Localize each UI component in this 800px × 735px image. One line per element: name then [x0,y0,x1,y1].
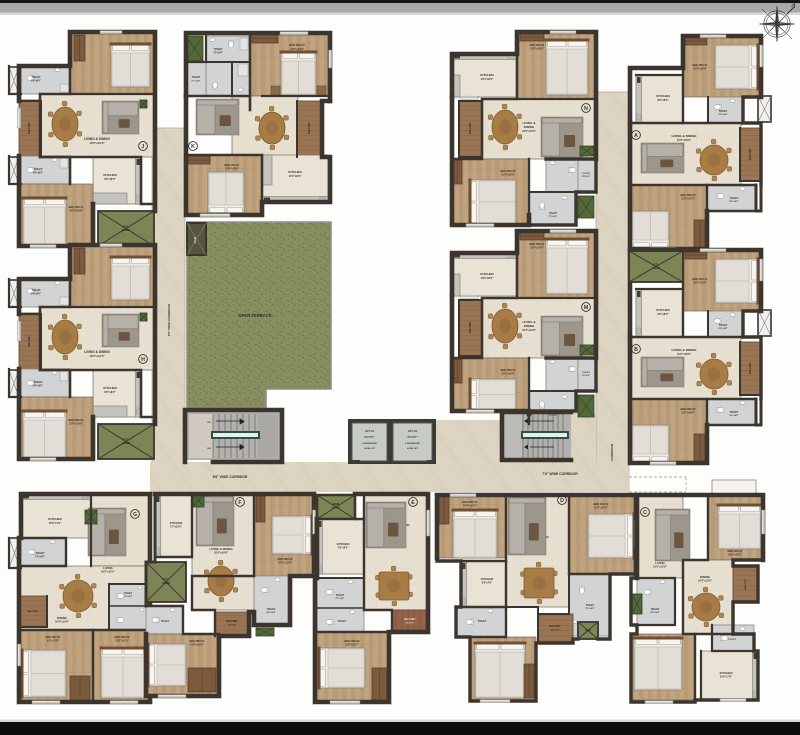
svg-text:TOILET: TOILET [214,48,223,51]
svg-text:10'0"x12'0": 10'0"x12'0" [728,553,743,557]
svg-text:8'0"x4'0": 8'0"x4'0" [729,414,738,417]
svg-text:KITCHEN: KITCHEN [656,308,669,312]
svg-text:E: E [411,500,415,506]
svg-text:A: A [634,133,638,139]
svg-text:4 PASSENGER: 4 PASSENGER [405,442,420,445]
svg-text:TOILET: TOILET [36,552,45,555]
svg-text:BALCONY: BALCONY [749,362,752,374]
svg-text:D: D [560,498,564,504]
svg-text:5'0"x8'0": 5'0"x8'0" [31,293,41,296]
svg-text:KITCHEN: KITCHEN [103,386,116,390]
svg-text:8'0"x8'0": 8'0"x8'0" [657,98,669,102]
svg-text:BED RM 01: BED RM 01 [693,63,708,67]
svg-text:10'0"x10'0": 10'0"x10'0" [214,551,229,555]
svg-text:10'0"x13'0": 10'0"x13'0" [89,354,105,358]
svg-text:LIFT-02: LIFT-02 [408,429,418,433]
svg-text:12'0"x10'0": 12'0"x10'0" [681,411,696,415]
svg-text:5'0"x8'0": 5'0"x8'0" [31,80,41,83]
svg-text:G: G [133,512,137,518]
svg-text:H: H [141,357,145,363]
svg-text:KITCHEN: KITCHEN [288,170,301,174]
svg-text:BALCONY: BALCONY [28,122,31,134]
svg-text:10'0"x8'0": 10'0"x8'0" [289,174,303,178]
svg-text:A.C.: A.C. [653,262,658,266]
svg-text:TOILET: TOILET [586,604,595,607]
svg-text:BED RM 02: BED RM 02 [681,193,696,197]
svg-text:KITCHEN: KITCHEN [481,577,493,581]
svg-text:5'5"x4'0": 5'5"x4'0" [551,629,560,632]
svg-text:12'0"x10'0": 12'0"x10'0" [225,167,240,171]
svg-text:7'0"x4'0": 7'0"x4'0" [228,624,237,627]
svg-text:BALCONY: BALCONY [749,148,752,160]
svg-text:BED RM 02: BED RM 02 [501,368,516,372]
svg-text:BED RM 01: BED RM 01 [69,205,84,209]
svg-text:12'0"x10'0": 12'0"x10'0" [69,209,84,213]
svg-text:TOILET: TOILET [728,639,736,641]
svg-text:7'0"x4'0": 7'0"x4'0" [124,595,133,598]
svg-text:TOILET: TOILET [31,75,41,79]
svg-text:6'8"x5'7": 6'8"x5'7" [407,436,417,439]
svg-text:N: N [584,106,588,112]
svg-text:8'0"x8'0": 8'0"x8'0" [104,390,116,394]
svg-text:BED RM 02: BED RM 02 [289,43,305,47]
svg-text:5'0"x8'0": 5'0"x8'0" [33,172,43,175]
svg-text:K: K [191,144,195,150]
svg-text:BED RM 02: BED RM 02 [345,639,360,643]
svg-text:TOILET: TOILET [33,167,43,171]
svg-text:DINING: DINING [57,616,68,620]
svg-text:BALCONY: BALCONY [469,321,472,333]
svg-text:12'0"x10'0": 12'0"x10'0" [69,422,84,426]
svg-text:TOILET: TOILET [582,173,590,175]
svg-text:12'0"x10'0": 12'0"x10'0" [530,246,545,250]
svg-text:10'0"x7'0": 10'0"x7'0" [720,675,733,679]
svg-text:BED RM 02: BED RM 02 [681,407,696,411]
svg-text:TOILET: TOILET [336,594,345,597]
svg-text:LIVING & DINING: LIVING & DINING [671,348,697,352]
svg-text:5'0"x8'0": 5'0"x8'0" [33,385,43,388]
svg-text:KITCHEN: KITCHEN [720,671,733,675]
svg-text:TOILET: TOILET [719,324,728,327]
svg-text:7'5"x4'0": 7'5"x4'0" [585,607,594,610]
svg-text:KITCHEN: KITCHEN [656,94,669,98]
svg-text:TOILET: TOILET [192,76,201,79]
svg-text:8'0"x4'0": 8'0"x4'0" [729,200,738,203]
svg-text:KITCHEN: KITCHEN [103,173,116,177]
svg-text:7'0"x5'0": 7'0"x5'0" [213,53,223,55]
svg-text:BALCONY: BALCONY [28,610,39,613]
svg-text:MAID: MAID [333,503,340,506]
svg-text:8'0"x7'0": 8'0"x7'0" [482,582,493,585]
svg-text:10'0"x12'0": 10'0"x12'0" [594,506,609,510]
svg-text:4 PASSENGER: 4 PASSENGER [362,442,377,445]
svg-text:KONE LIFT: KONE LIFT [407,448,419,450]
svg-text:BALCONY: BALCONY [404,618,416,621]
svg-text:BED RM 01: BED RM 01 [530,43,545,47]
svg-text:10'0"x7'0": 10'0"x7'0" [49,521,63,525]
svg-text:BALCONY: BALCONY [549,625,561,628]
svg-text:6'5"x4'0": 6'5"x4'0" [650,611,659,614]
svg-text:11'0"x12'0": 11'0"x12'0" [190,643,204,647]
svg-text:BED RM 01: BED RM 01 [693,277,708,281]
svg-text:BED RM 02: BED RM 02 [115,635,130,639]
svg-text:7'6" WIDE CORRIDOR: 7'6" WIDE CORRIDOR [542,472,578,476]
svg-text:M: M [584,305,588,311]
svg-text:9'0" WIDE CORRIDOR: 9'0" WIDE CORRIDOR [167,303,171,336]
svg-text:12'0"x11'0": 12'0"x11'0" [115,639,129,643]
svg-text:LIFT-01: LIFT-01 [365,429,375,433]
svg-text:BALCONY: BALCONY [28,335,31,347]
svg-text:10'0"x13'0": 10'0"x13'0" [89,141,105,145]
svg-text:TOILET: TOILET [31,288,41,292]
svg-text:LIVING & DINING: LIVING & DINING [209,547,233,551]
svg-text:7'0"x10'0": 7'0"x10'0" [170,526,183,529]
svg-text:6'0"x5'0": 6'0"x5'0" [582,176,590,178]
svg-text:BALCONY: BALCONY [469,122,472,134]
svg-text:C: C [643,510,647,516]
svg-text:TOILET: TOILET [124,593,133,595]
svg-text:MAID: MAID [585,629,591,632]
svg-text:DN: DN [207,448,211,450]
svg-text:10'0"x16'0": 10'0"x16'0" [677,138,692,142]
svg-text:12'0"x10'0": 12'0"x10'0" [693,67,708,71]
svg-text:LEDGE: LEDGE [652,267,661,270]
svg-text:BED RM 01: BED RM 01 [728,549,743,553]
svg-text:BED RM 02: BED RM 02 [501,169,516,173]
svg-text:12'0"x10'0": 12'0"x10'0" [501,372,516,376]
svg-text:BALCONY: BALCONY [226,620,238,623]
svg-text:KONE LIFT: KONE LIFT [364,448,376,450]
svg-text:DINING: DINING [524,324,535,328]
svg-text:BED RM 02: BED RM 02 [594,502,609,506]
svg-text:B: B [634,347,638,353]
svg-text:6'5"x4'0": 6'5"x4'0" [718,113,727,116]
svg-text:7'5"x4'0": 7'5"x4'0" [335,597,344,600]
svg-text:LIVING: LIVING [103,566,113,570]
svg-text:7'0"x4'0": 7'0"x4'0" [331,507,340,510]
svg-text:7'5"x5'0": 7'5"x5'0" [549,415,558,417]
svg-text:11'0"x11'7": 11'0"x11'7" [345,643,359,647]
svg-text:BED RM 01: BED RM 01 [46,635,61,639]
svg-text:BED RM 01: BED RM 01 [463,500,478,504]
svg-text:12'0"x10'0": 12'0"x10'0" [290,47,305,51]
svg-text:7'1"x5'0": 7'1"x5'0" [191,81,200,83]
svg-text:LIVING: LIVING [655,561,665,565]
svg-text:9'0"x11'0": 9'0"x11'0" [47,639,60,643]
svg-text:8'0"x8'0": 8'0"x8'0" [104,177,116,181]
svg-text:LIVING & DINING: LIVING & DINING [671,134,697,138]
svg-text:7'0"x8'0": 7'0"x8'0" [338,546,350,550]
svg-text:MAID: MAID [193,237,197,244]
svg-text:TOILET: TOILET [549,213,558,215]
svg-text:LEDGE: LEDGE [122,229,131,232]
svg-text:6'0"x5'0": 6'0"x5'0" [582,375,590,377]
svg-text:7'0"x4'0": 7'0"x4'0" [35,556,45,559]
svg-text:TOILET: TOILET [730,411,739,414]
svg-text:TOILET: TOILET [33,380,43,384]
svg-text:A.C.: A.C. [123,437,128,441]
svg-text:TOILET: TOILET [338,621,347,623]
svg-text:BED RM 01: BED RM 01 [530,242,545,246]
svg-text:BED RM 01: BED RM 01 [190,639,205,643]
svg-text:A.C.: A.C. [123,224,128,228]
svg-text:BALCONY: BALCONY [308,122,311,134]
svg-text:10'0"x8'0": 10'0"x8'0" [481,77,495,81]
svg-text:DINING: DINING [700,575,711,579]
svg-text:10'0"x8'0": 10'0"x8'0" [481,276,495,280]
svg-text:TOILET: TOILET [719,110,728,113]
svg-text:10'0"x16'0": 10'0"x16'0" [677,352,692,356]
svg-text:TOILET: TOILET [161,621,170,623]
svg-text:TOILET: TOILET [478,620,487,623]
svg-text:10'0"x12'2": 10'0"x12'2" [101,570,116,574]
svg-text:BALCONY: BALCONY [744,578,747,589]
svg-text:12'0"x10'0": 12'0"x10'0" [681,197,696,201]
svg-text:12'0"x10'0": 12'0"x10'0" [530,47,545,51]
svg-text:10'0"x12'2": 10'0"x12'2" [463,504,478,508]
svg-text:BED RM 02: BED RM 02 [278,557,293,561]
svg-text:12'0"x10'0": 12'0"x10'0" [501,173,516,177]
svg-text:6'5"x4'0": 6'5"x4'0" [718,327,727,330]
svg-text:7'5"x5'0": 7'5"x5'0" [549,216,558,218]
svg-text:KITCHEN: KITCHEN [170,521,182,525]
svg-text:BED RM 01: BED RM 01 [225,163,240,167]
svg-text:F: F [238,500,241,506]
svg-text:TOILET: TOILET [730,197,739,200]
svg-text:TOILET: TOILET [267,608,276,611]
svg-text:KITCHEN: KITCHEN [480,73,493,77]
svg-text:LEDGE: LEDGE [122,442,131,445]
svg-text:TOILET: TOILET [651,608,660,611]
svg-text:A.C.: A.C. [163,577,168,581]
svg-text:J: J [142,144,145,150]
svg-text:10'0"x12'2": 10'0"x12'2" [653,565,668,569]
svg-text:6'5"x7'0": 6'5"x7'0" [406,623,415,625]
svg-text:8'0"x8'0": 8'0"x8'0" [657,312,669,316]
svg-text:LEDGE: LEDGE [162,582,171,585]
svg-text:BED RM 01: BED RM 01 [69,418,84,422]
svg-text:KITCHEN: KITCHEN [480,272,493,276]
svg-text:10'0"x10'5": 10'0"x10'5" [698,579,713,583]
svg-text:10'0"x10'6": 10'0"x10'6" [55,620,70,624]
svg-text:12'0"x10'0": 12'0"x10'0" [693,281,708,285]
svg-text:10'0"x12'0": 10'0"x12'0" [278,561,293,565]
svg-text:10'0"x13'0": 10'0"x13'0" [522,129,537,133]
svg-text:KITCHEN: KITCHEN [337,542,350,546]
svg-text:OPEN TERRACE: OPEN TERRACE [238,313,271,318]
svg-text:6'8"x5'7": 6'8"x5'7" [364,436,374,439]
svg-text:UP: UP [207,422,211,424]
svg-text:TOILET: TOILET [582,372,590,374]
svg-text:DINING: DINING [524,125,535,129]
svg-text:8'0"x5'0": 8'0"x5'0" [266,612,275,614]
svg-text:KITCHEN: KITCHEN [48,517,61,521]
svg-text:8'6" WIDE CORRIDOR: 8'6" WIDE CORRIDOR [213,475,248,479]
svg-text:10'0"x13'0": 10'0"x13'0" [522,328,537,332]
